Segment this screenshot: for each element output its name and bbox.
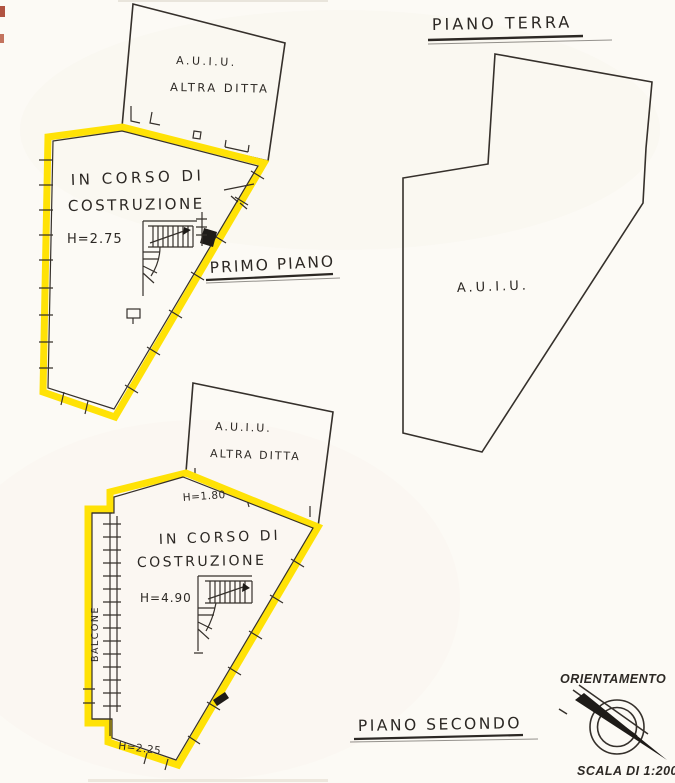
neighbor-company-label: ALTRA DITTA: [170, 80, 270, 96]
floor-plan-drawing: A.U.I.U. ALTRA DITTA IN CORSO DI COSTRUZ…: [0, 0, 675, 783]
compass-icon: [559, 685, 667, 760]
orientation-block: ORIENTAMENTO SCALA DI 1:200: [559, 672, 675, 778]
small-shaft: [127, 309, 140, 318]
height-main-label: H=4.90: [140, 591, 192, 605]
scan-artifacts: [0, 6, 5, 43]
title-primo-piano: PRIMO PIANO: [206, 252, 340, 283]
orientation-label: ORIENTAMENTO: [560, 672, 666, 686]
title-piano-secondo: PIANO SECONDO: [350, 714, 538, 742]
plan-title: PRIMO PIANO: [209, 252, 335, 277]
scale-label: SCALA DI 1:200: [577, 764, 675, 778]
unit-label: A.U.I.U.: [457, 278, 530, 296]
plan-title: PIANO SECONDO: [358, 714, 522, 735]
neighbor-unit-label: A.U.I.U.: [176, 54, 237, 69]
title-underline: [354, 735, 523, 739]
balcony-label: BALCONE: [90, 606, 101, 662]
paper-texture: [0, 0, 660, 782]
north-arrow: [575, 693, 667, 760]
height-label: H=2.75: [67, 232, 123, 247]
status-line2: COSTRUZIONE: [68, 195, 205, 215]
status-line2: COSTRUZIONE: [137, 553, 267, 571]
plan-title: PIANO TERRA: [432, 13, 573, 34]
neighbor-unit-label: A.U.I.U.: [215, 420, 272, 435]
floor-plan-sheet: A.U.I.U. ALTRA DITTA IN CORSO DI COSTRUZ…: [0, 0, 675, 783]
